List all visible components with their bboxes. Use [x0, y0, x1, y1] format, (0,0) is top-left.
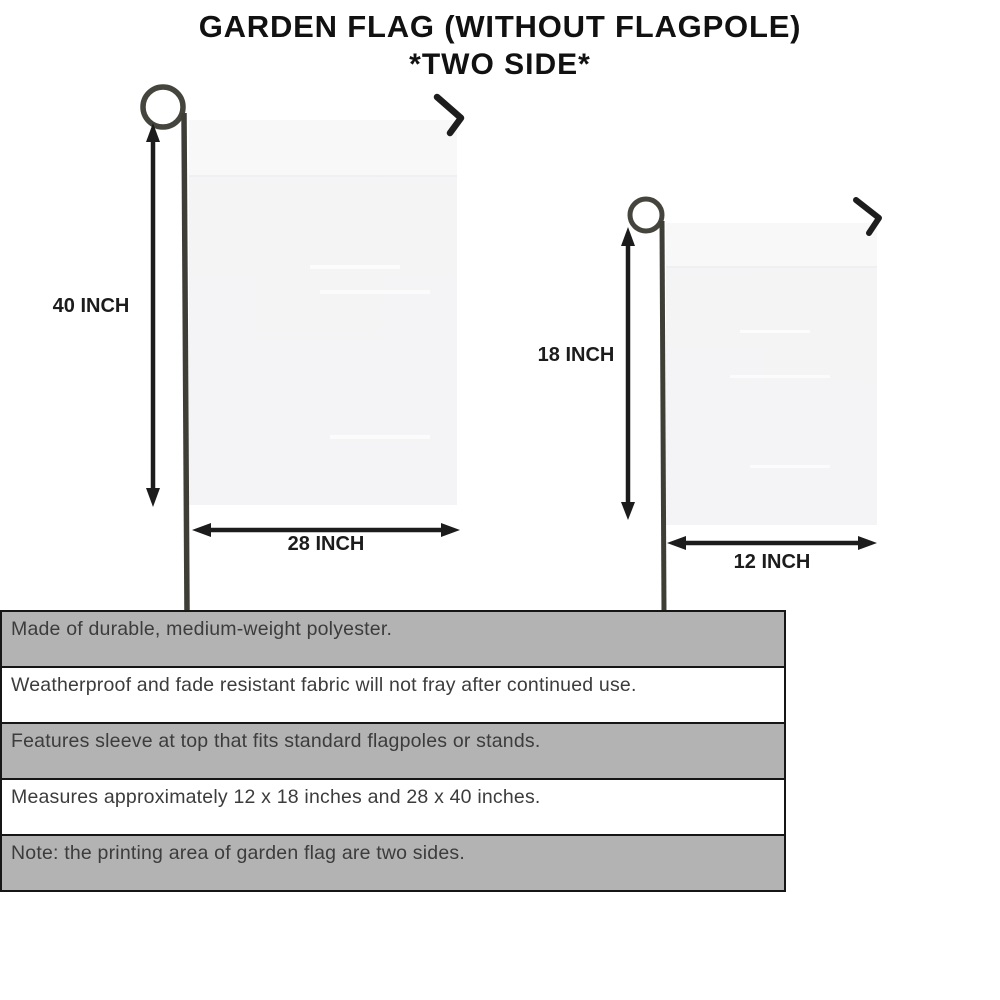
flag-crease	[310, 265, 400, 269]
feature-row-weatherproof: Weatherproof and fade resistant fabric w…	[0, 666, 786, 724]
flag-crease	[330, 435, 430, 439]
feature-row-note: Note: the printing area of garden flag a…	[0, 834, 786, 892]
height-label-small: 18 INCH	[506, 344, 646, 367]
flagpole-loop-icon	[630, 199, 662, 231]
height-label-large: 40 INCH	[36, 295, 146, 318]
flag-crease	[740, 330, 810, 333]
feature-row-measurements: Measures approximately 12 x 18 inches an…	[0, 778, 786, 836]
size-diagram: 40 INCH 28 INCH 18 INCH 12 INCH	[0, 75, 1000, 615]
garden-flag-size-infographic: GARDEN FLAG (WITHOUT FLAGPOLE) *TWO SIDE…	[0, 0, 1000, 1000]
small-flag-sleeve	[666, 223, 877, 267]
page-title: GARDEN FLAG (WITHOUT FLAGPOLE)	[0, 8, 1000, 47]
flag-crease	[730, 375, 830, 378]
flagpole-small	[662, 221, 664, 612]
feature-row-sleeve: Features sleeve at top that fits standar…	[0, 722, 786, 780]
dimension-arrow-vertical-large	[146, 123, 160, 507]
feature-row-material: Made of durable, medium-weight polyester…	[0, 610, 786, 668]
flagpole-loop-icon	[143, 87, 183, 127]
width-label-small: 12 INCH	[672, 551, 872, 574]
dimension-arrow-vertical-small	[621, 227, 635, 520]
feature-list: Made of durable, medium-weight polyester…	[0, 610, 786, 892]
flag-crease	[750, 465, 830, 468]
small-flag-cloth	[666, 223, 877, 525]
flagpole-large	[184, 113, 187, 612]
flag-crease	[320, 290, 430, 294]
header: GARDEN FLAG (WITHOUT FLAGPOLE) *TWO SIDE…	[0, 8, 1000, 83]
dimension-arrow-horizontal-small	[667, 536, 877, 550]
width-label-large: 28 INCH	[226, 533, 426, 556]
large-flag-sleeve	[189, 120, 457, 176]
flags-illustration	[0, 75, 1000, 615]
large-flag-cloth	[189, 120, 457, 505]
